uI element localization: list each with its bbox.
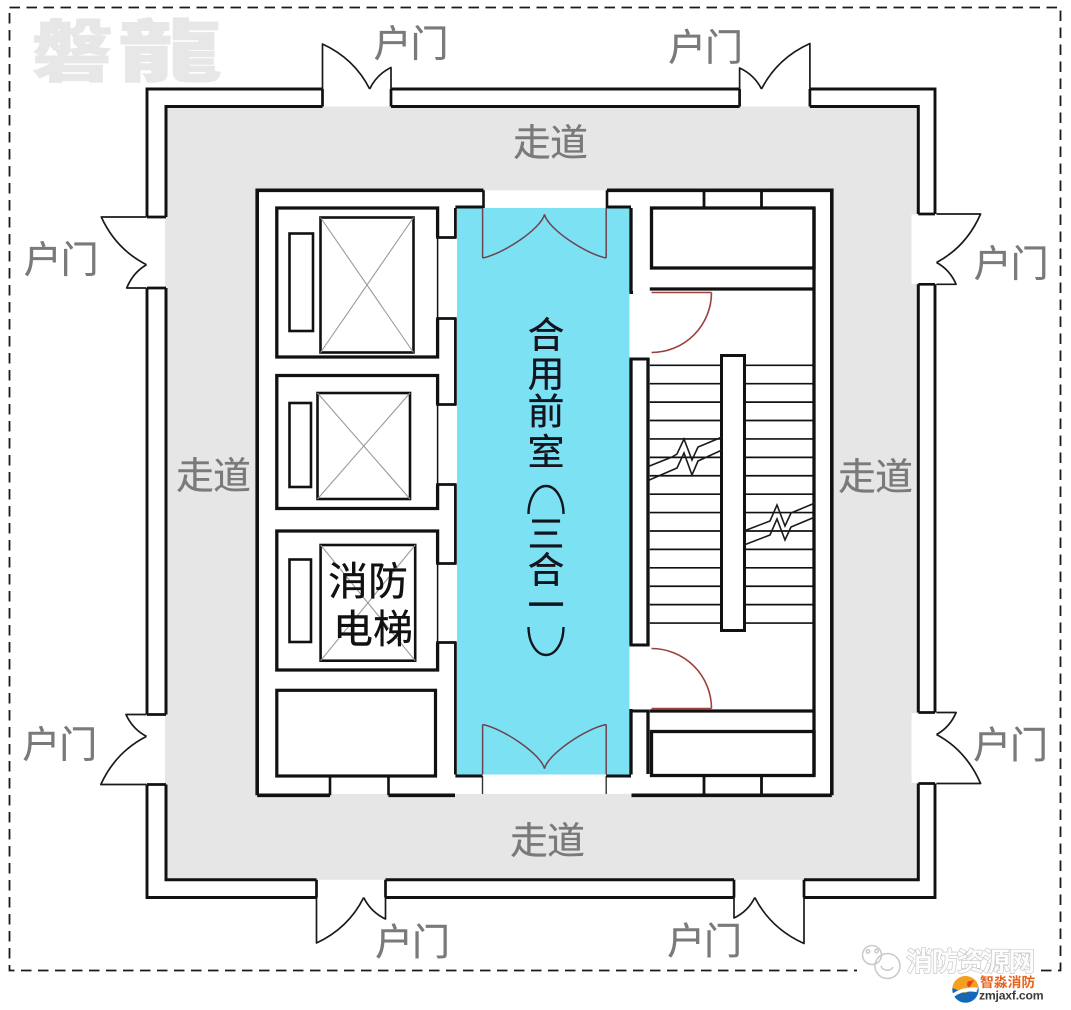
svg-text:zmjaxf.com: zmjaxf.com	[979, 989, 1044, 1003]
